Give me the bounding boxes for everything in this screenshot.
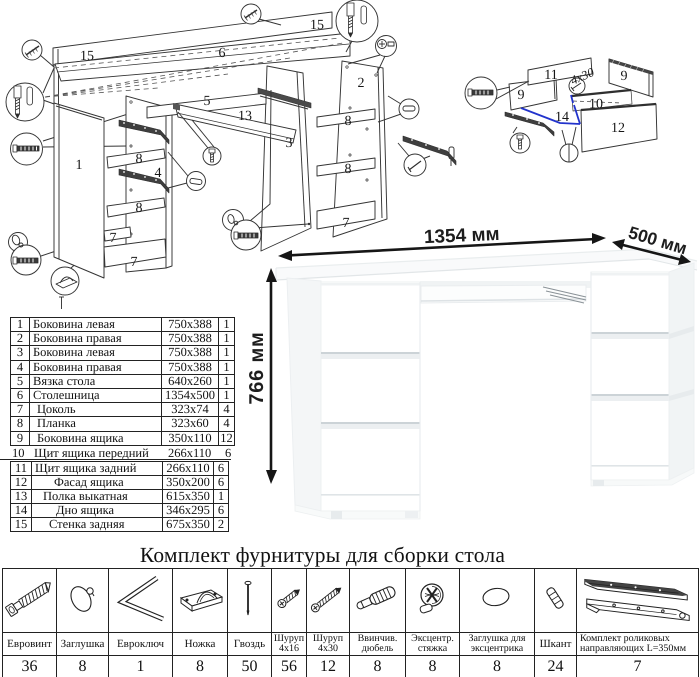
svg-text:1354 мм: 1354 мм (424, 224, 501, 248)
svg-text:8: 8 (136, 152, 143, 167)
svg-text:9: 9 (518, 88, 525, 103)
svg-text:14: 14 (555, 110, 569, 125)
svg-text:10: 10 (589, 97, 603, 112)
svg-text:5: 5 (204, 94, 211, 109)
svg-text:8: 8 (136, 201, 143, 216)
svg-text:8: 8 (345, 114, 352, 129)
svg-text:7: 7 (343, 216, 350, 231)
svg-text:2: 2 (358, 76, 365, 91)
svg-text:766 мм: 766 мм (246, 331, 268, 404)
svg-text:15: 15 (80, 49, 94, 64)
svg-text:7: 7 (110, 231, 117, 246)
svg-text:7: 7 (131, 255, 138, 270)
svg-text:4: 4 (155, 166, 162, 181)
svg-text:6: 6 (219, 46, 226, 61)
svg-text:1: 1 (76, 158, 83, 173)
svg-text:15: 15 (310, 18, 324, 33)
svg-text:3: 3 (286, 136, 293, 151)
svg-text:12: 12 (611, 121, 625, 136)
svg-text:8: 8 (345, 162, 352, 177)
svg-text:13: 13 (238, 109, 252, 124)
svg-text:9: 9 (621, 69, 628, 84)
svg-text:11: 11 (544, 68, 557, 83)
